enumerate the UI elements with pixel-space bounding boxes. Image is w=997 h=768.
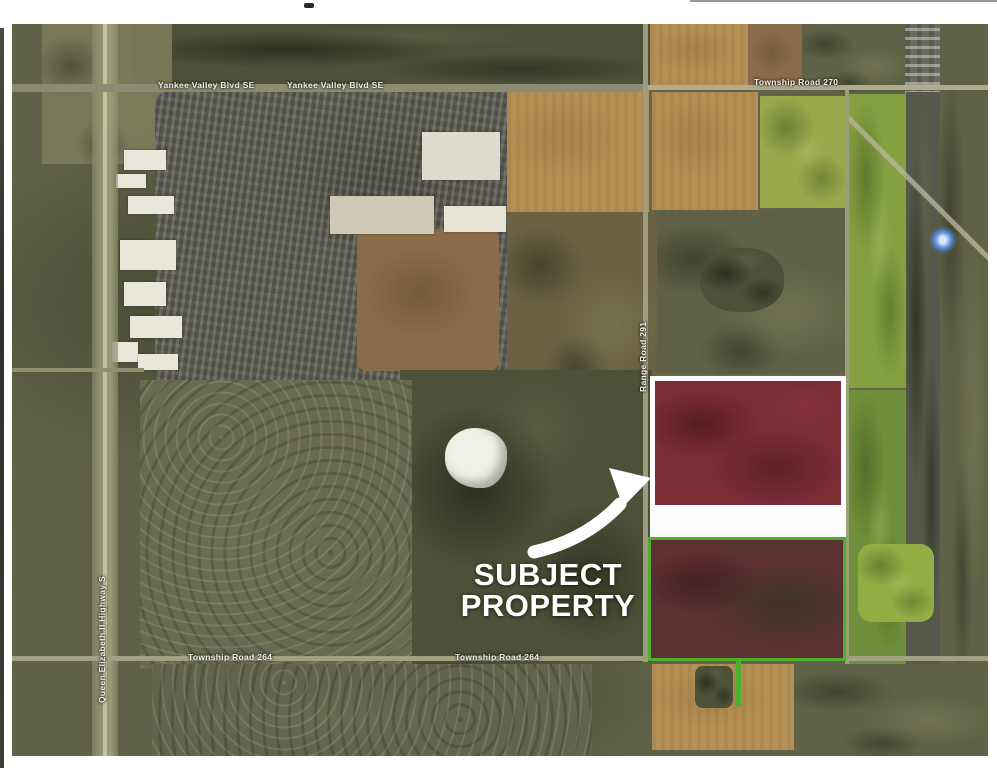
field-patch-mid-olive — [507, 212, 657, 392]
bottom-residential-strip — [152, 664, 592, 756]
subject-parcel-south — [648, 537, 846, 661]
parcel-divider-strip — [650, 510, 846, 537]
retail-building-row — [444, 206, 506, 232]
scan-mark-top — [304, 3, 314, 8]
field-patch-ne-tan — [650, 24, 760, 88]
commercial-building — [124, 150, 166, 170]
blue-marker — [929, 226, 957, 254]
field-far-right-edge — [940, 24, 988, 664]
dirt-field-development — [357, 229, 499, 371]
field-patch-east-tan — [652, 92, 758, 210]
commercial-building — [116, 174, 146, 188]
field-patch-bright-green — [858, 544, 934, 622]
subject-property-line2: PROPERTY — [436, 590, 660, 621]
field-patch-ne-brown — [748, 24, 802, 88]
retail-building-row — [422, 132, 500, 180]
commercial-building — [128, 196, 174, 214]
terrain-top-strip — [132, 24, 652, 88]
scan-line-top-right — [690, 0, 997, 2]
field-boundary-line — [12, 368, 144, 372]
commercial-building — [120, 240, 176, 270]
farmstead-speck — [695, 666, 733, 708]
field-strip-right-south — [848, 390, 906, 664]
retail-building-row — [330, 196, 434, 234]
queen-elizabeth-highway-centerline — [103, 24, 107, 756]
field-patch-mid-tan — [507, 90, 649, 212]
field-strip-right-north — [848, 94, 906, 388]
scanned-page: SUBJECT PROPERTY Yankee Valley Blvd SEYa… — [0, 0, 997, 768]
tree-blob-east — [700, 248, 784, 312]
commercial-building — [130, 316, 182, 338]
field-patch-ne-olive — [802, 24, 906, 92]
subject-parcel-north — [650, 376, 846, 510]
yankee-valley-blvd-road — [12, 84, 648, 92]
scan-edge-left — [0, 28, 4, 768]
aerial-photo — [12, 24, 988, 756]
field-patch-east-green — [760, 96, 846, 208]
commercial-building — [138, 354, 178, 370]
subject-property-line1: SUBJECT — [436, 559, 660, 590]
acreage-residential-area — [140, 380, 412, 668]
green-field-edge-line — [736, 656, 741, 706]
township-road-270-line — [648, 85, 988, 90]
field-patch-bottom-olive — [794, 664, 988, 756]
commercial-building — [124, 282, 166, 306]
pond — [445, 428, 507, 488]
subject-property-label: SUBJECT PROPERTY — [436, 559, 660, 621]
